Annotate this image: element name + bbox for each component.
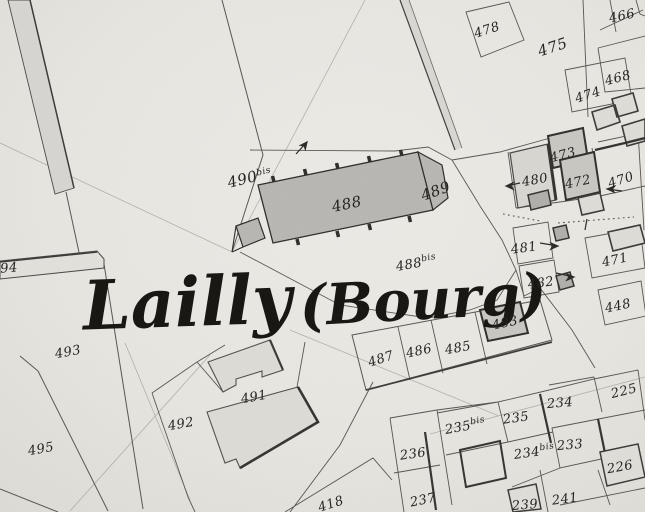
cadastral-map-scan: Lailly (Bourg) 478 475 466 468 474 473 4…	[0, 0, 645, 512]
map-canvas: Lailly (Bourg) 478 475 466 468 474 473 4…	[0, 0, 645, 512]
scan-grain-overlay	[0, 0, 645, 512]
